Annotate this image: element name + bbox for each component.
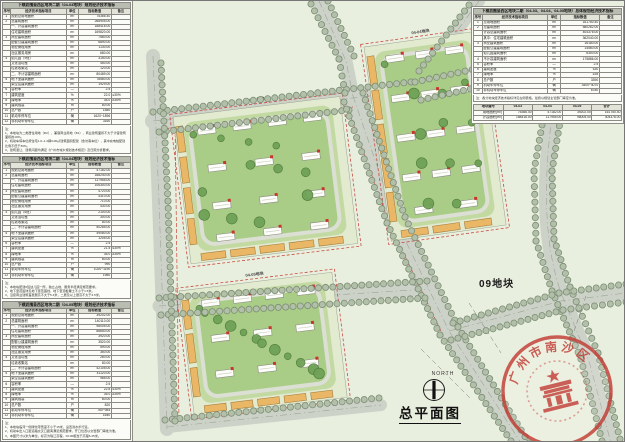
- street-tree: [549, 176, 555, 182]
- street-tree: [319, 302, 325, 308]
- table-cell: [111, 119, 130, 124]
- street-tree: [500, 425, 506, 431]
- street-tree: [164, 183, 170, 189]
- street-tree: [273, 115, 279, 121]
- street-tree: [207, 292, 213, 298]
- street-tree: [533, 230, 539, 236]
- table-row: 10非机动车停车位辆6780: [474, 88, 622, 93]
- street-tree: [171, 127, 177, 133]
- street-tree: [448, 337, 454, 343]
- street-tree: [207, 102, 213, 108]
- street-tree: [437, 332, 443, 338]
- street-tree: [467, 343, 473, 349]
- street-tree: [419, 248, 425, 254]
- street-tree: [549, 183, 555, 189]
- street-tree: [579, 313, 585, 319]
- street-tree: [470, 382, 476, 388]
- street-tree: [419, 77, 425, 83]
- street-tree: [540, 259, 546, 265]
- table-title: 下横沥围垦西区地块二期（04-03、04-04、04-05地块）总体规划经济技术…: [474, 9, 622, 15]
- street-tree: [378, 298, 384, 304]
- street-tree: [279, 94, 285, 100]
- street-tree: [236, 409, 242, 415]
- street-tree: [386, 81, 392, 87]
- street-tree: [573, 299, 579, 305]
- street-tree: [200, 103, 206, 109]
- street-tree: [415, 241, 421, 247]
- street-tree: [454, 357, 460, 363]
- street-tree: [356, 142, 362, 148]
- street-tree: [561, 315, 567, 321]
- street-tree: [351, 86, 357, 92]
- street-tree: [159, 74, 165, 80]
- street-tree: [439, 38, 445, 44]
- street-tree: [302, 112, 308, 118]
- street-tree: [162, 133, 168, 139]
- street-tree: [324, 400, 330, 406]
- street-tree: [551, 153, 557, 159]
- street-tree: [379, 82, 385, 88]
- street-tree: [171, 403, 177, 409]
- street-tree: [170, 359, 176, 365]
- street-tree: [532, 215, 538, 221]
- street-tree: [435, 283, 441, 289]
- street-tree: [167, 264, 173, 270]
- table-notes: 注：1、本地块临河一侧绿化带宽度不小于15米，设置滨水步行道。2、机动车出入口距…: [2, 420, 131, 440]
- street-tree: [422, 295, 428, 301]
- street-tree: [331, 109, 337, 115]
- street-tree: [167, 257, 173, 263]
- street-tree: [294, 286, 300, 292]
- street-tree: [308, 285, 314, 291]
- street-tree: [161, 111, 167, 117]
- street-tree: [206, 412, 212, 418]
- street-tree: [187, 310, 193, 316]
- street-tree: [400, 296, 406, 302]
- street-tree: [163, 162, 169, 168]
- street-tree: [369, 118, 375, 124]
- drawing-title: 总平面图: [399, 402, 461, 424]
- street-tree: [617, 436, 623, 442]
- street-tree: [171, 106, 177, 112]
- street-tree: [424, 306, 430, 312]
- street-tree: [159, 82, 165, 88]
- street-tree: [592, 343, 598, 349]
- table-row: 12非机动车停车位辆1640: [3, 413, 131, 418]
- street-tree: [305, 303, 311, 309]
- street-tree: [432, 94, 438, 100]
- street-tree: [325, 1, 331, 4]
- street-tree: [514, 302, 520, 308]
- street-tree: [533, 238, 539, 244]
- street-tree: [458, 363, 464, 369]
- street-tree: [342, 90, 348, 96]
- street-tree: [339, 73, 345, 79]
- column-header: 序号: [3, 163, 11, 168]
- street-tree: [434, 325, 440, 331]
- street-tree: [556, 250, 562, 256]
- street-tree: [366, 282, 372, 288]
- street-tree: [613, 422, 619, 428]
- street-tree: [532, 160, 538, 166]
- street-tree: [532, 199, 538, 205]
- street-tree: [344, 39, 350, 45]
- street-tree: [261, 305, 267, 311]
- table-cell: [111, 273, 130, 278]
- street-tree: [371, 298, 377, 304]
- street-tree: [224, 308, 230, 314]
- street-tree: [207, 123, 213, 129]
- street-tree: [362, 97, 368, 103]
- table-cell: 辆: [67, 119, 79, 124]
- street-tree: [361, 396, 367, 402]
- table-cell: 404376.00: [592, 115, 622, 120]
- street-tree: [346, 113, 352, 119]
- street-tree: [202, 309, 208, 315]
- street-tree: [160, 96, 166, 102]
- street-tree: [441, 73, 447, 79]
- street-tree: [178, 126, 184, 132]
- table-cell: 辆: [67, 413, 79, 418]
- table-cell: 10: [474, 88, 483, 93]
- column-header: 序号: [474, 15, 483, 20]
- street-tree: [425, 95, 431, 101]
- note-line: 3、本图尺寸以米为单位，标高为珠江高程，±0.00相当于高程6.45米。: [5, 434, 128, 438]
- street-tree: [616, 282, 622, 288]
- street-tree: [191, 414, 197, 420]
- street-tree: [166, 227, 172, 233]
- street-tree: [228, 290, 234, 296]
- street-tree: [360, 90, 366, 96]
- street-tree: [221, 291, 227, 297]
- street-tree: [373, 281, 379, 287]
- street-tree: [170, 345, 176, 351]
- street-tree: [311, 8, 317, 14]
- north-label: NORTH: [420, 371, 466, 377]
- street-tree: [409, 273, 415, 279]
- street-tree: [295, 113, 301, 119]
- street-tree: [165, 198, 171, 204]
- street-tree: [228, 410, 234, 416]
- street-tree: [461, 8, 467, 14]
- street-tree: [483, 369, 489, 375]
- street-tree: [332, 49, 338, 55]
- street-tree: [532, 314, 538, 320]
- table-cell: 计容面积(m²): [474, 115, 504, 120]
- street-tree: [166, 220, 172, 226]
- right-table-note: 注：各分地块经济技术指标详见左侧表格，最终以规划主管部门审定为准。: [473, 95, 622, 102]
- street-tree: [168, 293, 174, 299]
- street-tree: [578, 287, 584, 293]
- street-tree: [372, 124, 378, 130]
- street-tree: [511, 320, 517, 326]
- street-tree: [164, 176, 170, 182]
- street-tree: [607, 301, 613, 307]
- table-cell: [111, 413, 130, 418]
- street-tree: [425, 56, 431, 62]
- street-tree: [251, 408, 257, 414]
- street-tree: [290, 303, 296, 309]
- street-tree: [549, 168, 555, 174]
- street-tree: [415, 286, 421, 292]
- street-tree: [265, 288, 271, 294]
- note-line: 3、建筑退让、建筑间距均满足《广州市城乡规划技术规定》及日照分析要求。: [5, 148, 128, 152]
- street-tree: [428, 312, 434, 318]
- street-tree: [402, 279, 408, 285]
- street-tree: [250, 289, 256, 295]
- street-tree: [550, 160, 556, 166]
- street-tree: [322, 89, 328, 95]
- table-cell: 12: [3, 413, 11, 418]
- street-tree: [542, 294, 548, 300]
- street-tree: [563, 289, 569, 295]
- street-tree: [327, 301, 333, 307]
- street-tree: [168, 279, 174, 285]
- street-tree: [415, 295, 421, 301]
- street-tree: [172, 411, 178, 417]
- table-cell: 12: [3, 273, 11, 278]
- street-tree: [239, 307, 245, 313]
- right-indicator-panel: 下横沥围垦西区地块二期（04-03、04-04、04-05地块）总体规划经济技术…: [471, 6, 624, 124]
- street-tree: [601, 284, 607, 290]
- street-tree: [315, 15, 321, 21]
- street-tree: [280, 405, 286, 411]
- street-tree: [455, 335, 461, 341]
- street-tree: [367, 111, 373, 117]
- street-tree: [395, 280, 401, 286]
- street-tree: [179, 106, 185, 112]
- street-tree: [576, 305, 582, 311]
- street-tree: [555, 302, 561, 308]
- street-tree: [165, 191, 171, 197]
- table-notes: 注：1、本地块配建6班幼儿园一所，独立占地，服务半径满足规范要求。2、地下室范围…: [2, 280, 131, 300]
- street-tree: [412, 79, 418, 85]
- street-tree: [166, 235, 172, 241]
- street-tree: [448, 71, 454, 77]
- street-tree: [494, 388, 500, 394]
- street-tree: [279, 287, 285, 293]
- street-tree: [221, 411, 227, 417]
- note-line: 3、沿街商业建筑首层层高不大于5.4米，二层及以上层高不大于4.5米。: [5, 293, 128, 297]
- street-tree: [158, 67, 164, 73]
- street-tree: [334, 301, 340, 307]
- street-tree: [430, 50, 436, 56]
- street-tree: [217, 308, 223, 314]
- street-tree: [615, 300, 621, 306]
- street-tree: [539, 313, 545, 319]
- column-header: 序号: [3, 308, 11, 313]
- street-tree: [364, 163, 370, 169]
- street-tree: [169, 323, 175, 329]
- left-indicator-panel: 下横沥围垦西区地块二期（04-03地块）规划经济技术指标序号经济技术指标项目单位…: [1, 1, 133, 442]
- street-tree: [169, 337, 175, 343]
- street-tree: [381, 213, 387, 219]
- street-tree: [535, 145, 541, 151]
- table-cell: [599, 88, 621, 93]
- street-tree: [508, 438, 514, 442]
- street-tree: [424, 278, 430, 284]
- street-tree: [369, 177, 375, 183]
- street-tree: [422, 255, 428, 261]
- table-title: 下横沥围垦西区地块二期（04-03地块）规划经济技术指标: [3, 3, 131, 9]
- drawing-sheet: 04-03地块04-04地块04-05地块 广州市南沙区人民政府: [0, 0, 625, 442]
- street-tree: [337, 283, 343, 289]
- street-tree: [535, 296, 541, 302]
- street-tree: [452, 20, 458, 26]
- indicator-table: 下横沥围垦西区地块二期（04-03、04-04、04-05地块）总体规划经济技术…: [473, 8, 622, 94]
- street-tree: [162, 140, 168, 146]
- street-tree: [323, 284, 329, 290]
- street-tree: [431, 319, 437, 325]
- street-tree: [402, 214, 408, 220]
- street-tree: [443, 32, 449, 38]
- street-tree: [167, 271, 173, 277]
- street-tree: [551, 221, 557, 227]
- street-tree: [258, 117, 264, 123]
- street-tree: [376, 138, 382, 144]
- street-tree: [448, 310, 454, 316]
- street-tree: [287, 404, 293, 410]
- street-tree: [490, 326, 496, 332]
- street-tree: [383, 159, 389, 165]
- street-tree: [432, 276, 438, 282]
- street-tree: [169, 330, 175, 336]
- street-tree: [535, 245, 541, 251]
- street-tree: [478, 312, 484, 318]
- table-cell: 非机动车停车位: [10, 413, 66, 418]
- street-tree: [162, 417, 168, 423]
- street-tree: [273, 406, 279, 412]
- street-tree: [359, 149, 365, 155]
- street-tree: [445, 344, 451, 350]
- street-tree: [236, 290, 242, 296]
- street-tree: [394, 81, 400, 87]
- street-tree: [554, 138, 560, 144]
- table-cell: 辆: [67, 273, 79, 278]
- street-tree: [200, 124, 206, 130]
- street-tree: [286, 287, 292, 293]
- street-tree: [490, 382, 496, 388]
- street-tree: [341, 300, 347, 306]
- street-tree: [479, 394, 485, 400]
- table-cell: 非机动车停车位: [10, 273, 66, 278]
- street-tree: [475, 388, 481, 394]
- street-tree: [566, 329, 572, 335]
- street-tree: [178, 294, 184, 300]
- table-cell: 98005.00: [562, 115, 592, 120]
- street-tree: [583, 321, 589, 327]
- street-tree: [335, 19, 341, 25]
- street-tree: [450, 320, 456, 326]
- street-tree: [571, 288, 577, 294]
- street-tree: [348, 46, 354, 52]
- street-tree: [420, 62, 426, 68]
- street-tree: [328, 5, 334, 11]
- street-tree: [546, 311, 552, 317]
- street-tree: [475, 356, 481, 362]
- street-tree: [558, 257, 564, 263]
- street-tree: [331, 12, 337, 18]
- street-tree: [195, 310, 201, 316]
- street-tree: [171, 381, 177, 387]
- street-tree: [538, 130, 544, 136]
- street-tree: [374, 191, 380, 197]
- street-tree: [161, 118, 167, 124]
- street-tree: [396, 246, 402, 252]
- street-tree: [393, 240, 399, 246]
- street-tree: [272, 288, 278, 294]
- street-tree: [438, 290, 444, 296]
- street-tree: [339, 399, 345, 405]
- street-tree: [534, 153, 540, 159]
- street-tree: [397, 200, 403, 206]
- street-tree: [536, 137, 542, 143]
- street-tree: [162, 147, 168, 153]
- street-tree: [366, 170, 372, 176]
- street-tree: [229, 100, 235, 106]
- street-tree: [560, 263, 566, 269]
- street-tree: [412, 235, 418, 241]
- street-tree: [428, 269, 434, 275]
- table-notes: 注：1、本地块为二类居住用地（R2），兼容商业用地（B1），商业建筑面积不大于计…: [2, 126, 131, 154]
- street-tree: [599, 438, 605, 442]
- street-tree: [170, 367, 176, 373]
- street-tree: [193, 104, 199, 110]
- street-tree: [160, 104, 166, 110]
- north-arrow-icon: [424, 380, 445, 401]
- street-tree: [532, 191, 538, 197]
- street-tree: [553, 243, 559, 249]
- street-tree: [379, 145, 385, 151]
- table-title: 下横沥围垦西区地块二期（04-04地块）规划经济技术指标: [3, 156, 131, 162]
- street-tree: [385, 297, 391, 303]
- street-tree: [439, 92, 445, 98]
- table-cell: 6780: [561, 88, 599, 93]
- street-tree: [272, 95, 278, 101]
- street-tree: [324, 109, 330, 115]
- street-tree: [521, 300, 527, 306]
- street-tree: [565, 277, 571, 283]
- street-tree: [365, 104, 371, 110]
- table-cell: 188416.00: [503, 115, 533, 120]
- street-tree: [479, 363, 485, 369]
- street-tree: [433, 74, 439, 80]
- street-tree: [185, 126, 191, 132]
- street-tree: [417, 278, 423, 284]
- street-tree: [283, 304, 289, 310]
- street-tree: [495, 419, 501, 425]
- street-tree: [381, 152, 387, 158]
- street-tree: [192, 293, 198, 299]
- street-tree: [380, 281, 386, 287]
- street-tree: [393, 186, 399, 192]
- street-tree: [387, 227, 393, 233]
- street-tree: [611, 414, 617, 420]
- street-tree: [166, 242, 172, 248]
- street-tree: [167, 249, 173, 255]
- street-tree: [251, 118, 257, 124]
- street-tree: [528, 298, 534, 304]
- street-tree: [185, 293, 191, 299]
- street-tree: [455, 70, 461, 76]
- street-tree: [214, 291, 220, 297]
- street-tree: [434, 44, 440, 50]
- street-tree: [310, 402, 316, 408]
- street-tree: [180, 311, 186, 317]
- street-tree: [442, 296, 448, 302]
- street-tree: [214, 412, 220, 418]
- street-tree: [150, 109, 156, 115]
